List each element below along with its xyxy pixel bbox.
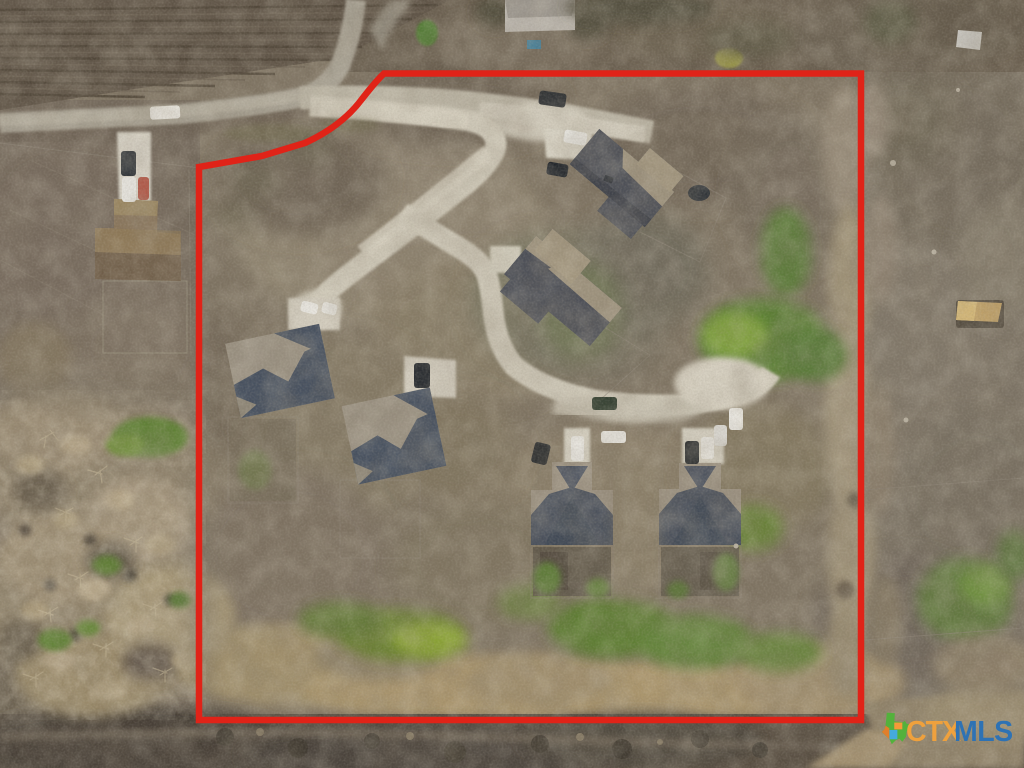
svg-text:CTX: CTX bbox=[906, 716, 961, 748]
svg-text:MLS: MLS bbox=[954, 716, 1013, 748]
